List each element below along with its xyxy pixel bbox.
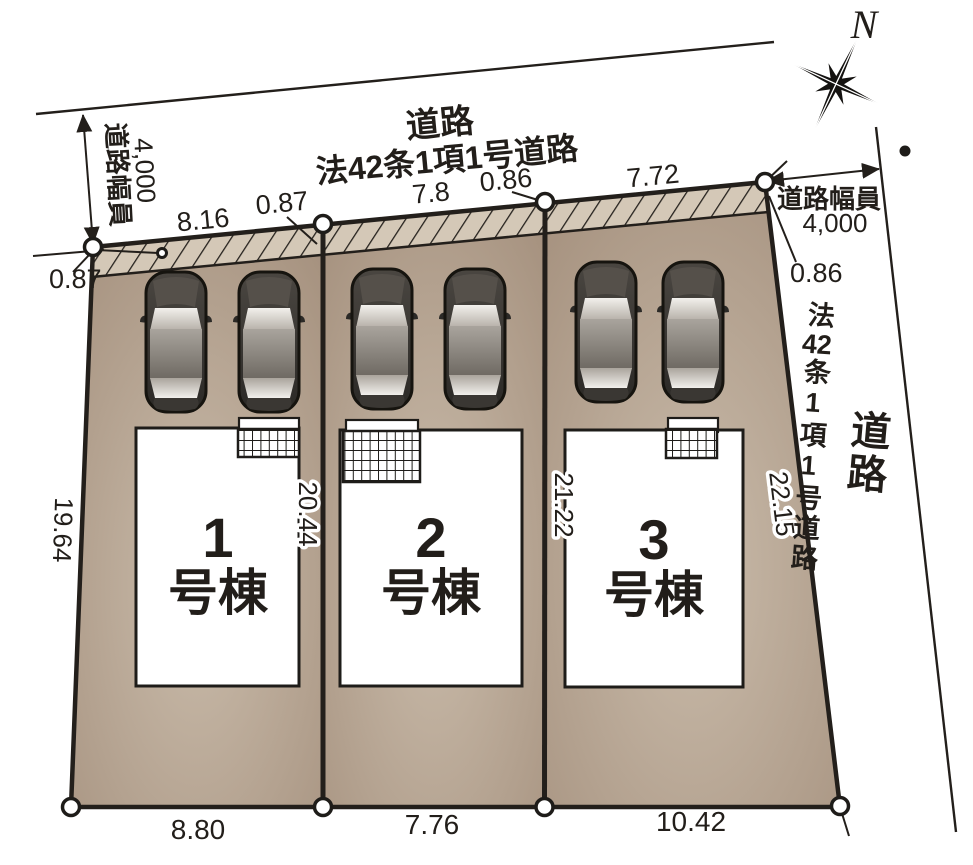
- boundary-point-top-2: [315, 216, 332, 233]
- dim-top-2: 0.87: [254, 186, 309, 221]
- boundary-point-top-3: [537, 194, 554, 211]
- porch-2-grid: [343, 431, 420, 482]
- building-1-suffix: 号棟: [168, 565, 269, 621]
- dim-left-corner: 0.87: [49, 264, 102, 294]
- car-lot1-a: [140, 272, 212, 412]
- car-lot3-b: [657, 262, 729, 402]
- boundary-point-bottom-3: [536, 799, 553, 816]
- left-road-width-dim-line: [83, 115, 93, 244]
- dim-bottom-3: 10.42: [656, 806, 726, 837]
- right-road-type-p1: 法: [803, 300, 835, 332]
- building-3-suffix: 号棟: [604, 567, 705, 623]
- porch-1-grid: [238, 429, 299, 457]
- right-road-edge: [876, 127, 956, 832]
- site-plan: 1 号棟 2 号棟 3 号棟: [0, 0, 973, 865]
- right-road-width: 道路幅員 4,000: [777, 184, 881, 238]
- building-2-number: 2: [415, 506, 446, 569]
- site-plan-drawing: 1 号棟 2 号棟 3 号棟: [0, 0, 973, 865]
- right-road-width-dim-line: [767, 169, 879, 181]
- right-road-name: 道路: [842, 408, 889, 497]
- left-road-width-value: 4,000: [128, 137, 161, 204]
- dim-divider-1: 20.44: [293, 481, 323, 546]
- setback-point: [158, 249, 167, 258]
- boundary-point-top-4: [757, 174, 774, 191]
- car-lot2-a: [346, 269, 418, 409]
- dim-top-4: 0.86: [478, 163, 533, 198]
- dim-top-3: 7.8: [411, 176, 451, 209]
- dim-left-edge: 19.64: [47, 497, 79, 563]
- dim-right-corner: 0.86: [790, 258, 843, 288]
- dim-bottom-1: 8.80: [171, 814, 226, 845]
- dim-divider-2: 21.22: [549, 472, 579, 537]
- boundary-point-bottom-1: [63, 799, 80, 816]
- boundary-point-top-1: [85, 239, 102, 256]
- compass: N: [793, 2, 880, 131]
- buildings: 1 号棟 2 号棟 3 号棟: [136, 428, 743, 687]
- dim-top-5: 7.72: [625, 159, 680, 194]
- right-road-width-value: 4,000: [802, 208, 867, 238]
- car-lot1-b: [233, 272, 305, 412]
- car-lot3-a: [570, 262, 642, 402]
- left-road-width: 道路幅員 4,000: [100, 122, 161, 227]
- right-road-type-p2: 42: [801, 330, 833, 359]
- boundary-point-bottom-4: [832, 798, 849, 815]
- dim-bottom-2: 7.76: [405, 809, 460, 840]
- dim-top-1: 8.16: [175, 203, 230, 238]
- porch-3-grid: [666, 429, 717, 458]
- compass-facets: [793, 37, 880, 131]
- building-3-number: 3: [638, 508, 669, 571]
- lot-divider-2: [545, 202, 546, 807]
- building-1-number: 1: [202, 506, 233, 569]
- car-lot2-b: [439, 269, 511, 409]
- top-road-edge: [36, 42, 774, 114]
- survey-dot: [900, 146, 911, 157]
- compass-north-label: N: [850, 2, 880, 47]
- building-2-suffix: 号棟: [381, 565, 482, 621]
- boundary-point-bottom-2: [315, 799, 332, 816]
